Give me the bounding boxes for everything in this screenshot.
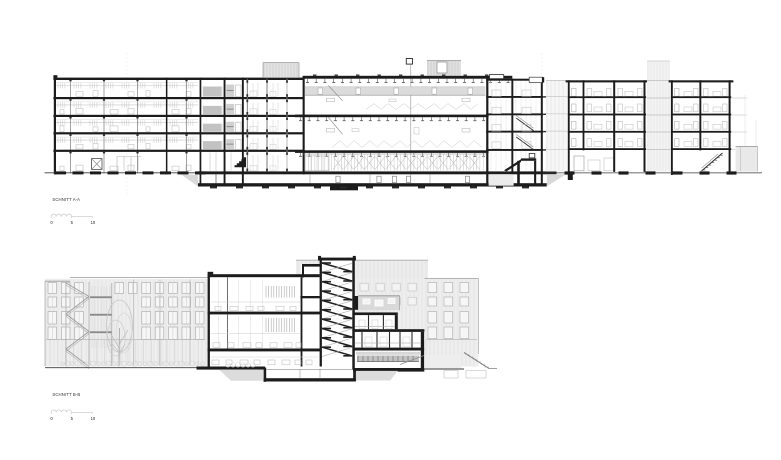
svg-text:10: 10 [91,220,96,225]
svg-text:SCHNITT B-B: SCHNITT B-B [52,392,80,397]
svg-text:10: 10 [91,416,96,421]
svg-text:SCHNITT A-A: SCHNITT A-A [52,197,80,202]
